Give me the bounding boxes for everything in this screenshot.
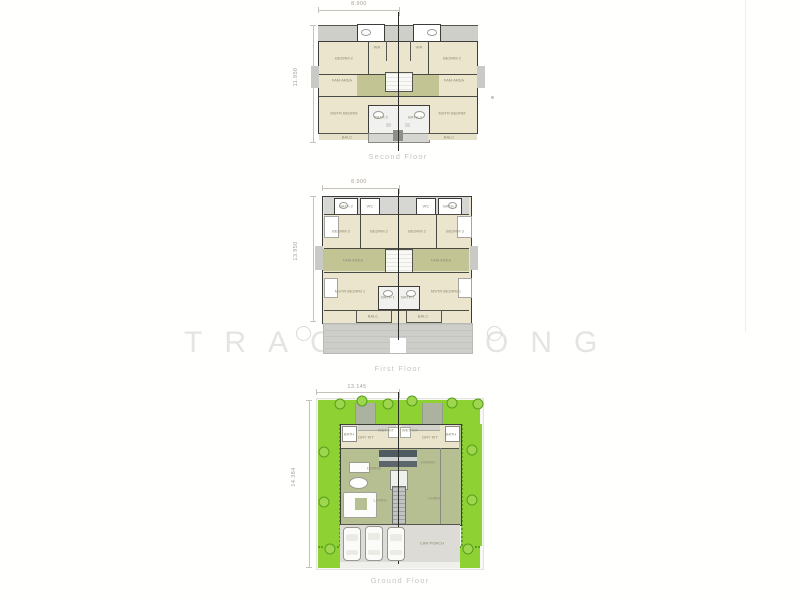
room-label: WET KIT bbox=[378, 428, 394, 433]
room-label: BATH 2 bbox=[374, 115, 388, 120]
room-label: WC bbox=[367, 204, 374, 209]
room-label: WET KIT bbox=[402, 428, 418, 433]
room-label: MSTR BEDRM bbox=[331, 111, 358, 116]
room-label: BEDRM 2 bbox=[335, 56, 353, 61]
room-label: FAM AREA bbox=[343, 258, 363, 263]
room-label: WR bbox=[374, 45, 381, 50]
room-label: BEDRM 3 bbox=[446, 229, 464, 234]
room-label: FAM AREA bbox=[431, 258, 451, 263]
drawing-sheet: TRAC ONG 8.900 11.950 bbox=[0, 0, 800, 600]
room-label: BALC bbox=[444, 135, 454, 140]
room-label: LIVING bbox=[373, 498, 386, 503]
room-label: WR bbox=[416, 45, 423, 50]
room-label: BATH bbox=[344, 432, 354, 437]
room-label: MSTR BEDRM 1 bbox=[335, 289, 365, 294]
room-label: BEDRM 2 bbox=[408, 229, 426, 234]
room-label: BEDRM 3 bbox=[332, 229, 350, 234]
room-label: BATH bbox=[446, 432, 456, 437]
room-label: BEDRM 2 bbox=[443, 56, 461, 61]
room-label: CAR PORCH bbox=[420, 541, 444, 546]
room-label: BATH 2 bbox=[443, 204, 457, 209]
room-label: BATH 1 bbox=[401, 295, 415, 300]
room-label: BATH 1 bbox=[381, 295, 395, 300]
room-label: DINING bbox=[421, 460, 435, 465]
room-labels-layer: BEDRM 2BEDRM 2WRWRFAM AREAFAM AREAMSTR B… bbox=[0, 0, 800, 600]
room-label: BALC bbox=[342, 135, 352, 140]
room-label: LIVING bbox=[427, 496, 440, 501]
room-label: BALC bbox=[368, 314, 378, 319]
room-label: FAM AREA bbox=[332, 78, 352, 83]
room-label: BALC bbox=[418, 314, 428, 319]
room-label: BATH 2 bbox=[339, 204, 353, 209]
room-label: MSTR BEDRM bbox=[439, 111, 466, 116]
room-label: DINING bbox=[367, 466, 381, 471]
room-label: MSTR BEDRM 1 bbox=[431, 289, 461, 294]
room-label: BATH 2 bbox=[408, 115, 422, 120]
room-label: DRY KIT bbox=[422, 435, 438, 440]
room-label: FAM AREA bbox=[444, 78, 464, 83]
room-label: BEDRM 2 bbox=[370, 229, 388, 234]
room-label: DRY KIT bbox=[358, 435, 374, 440]
room-label: WC bbox=[423, 204, 430, 209]
